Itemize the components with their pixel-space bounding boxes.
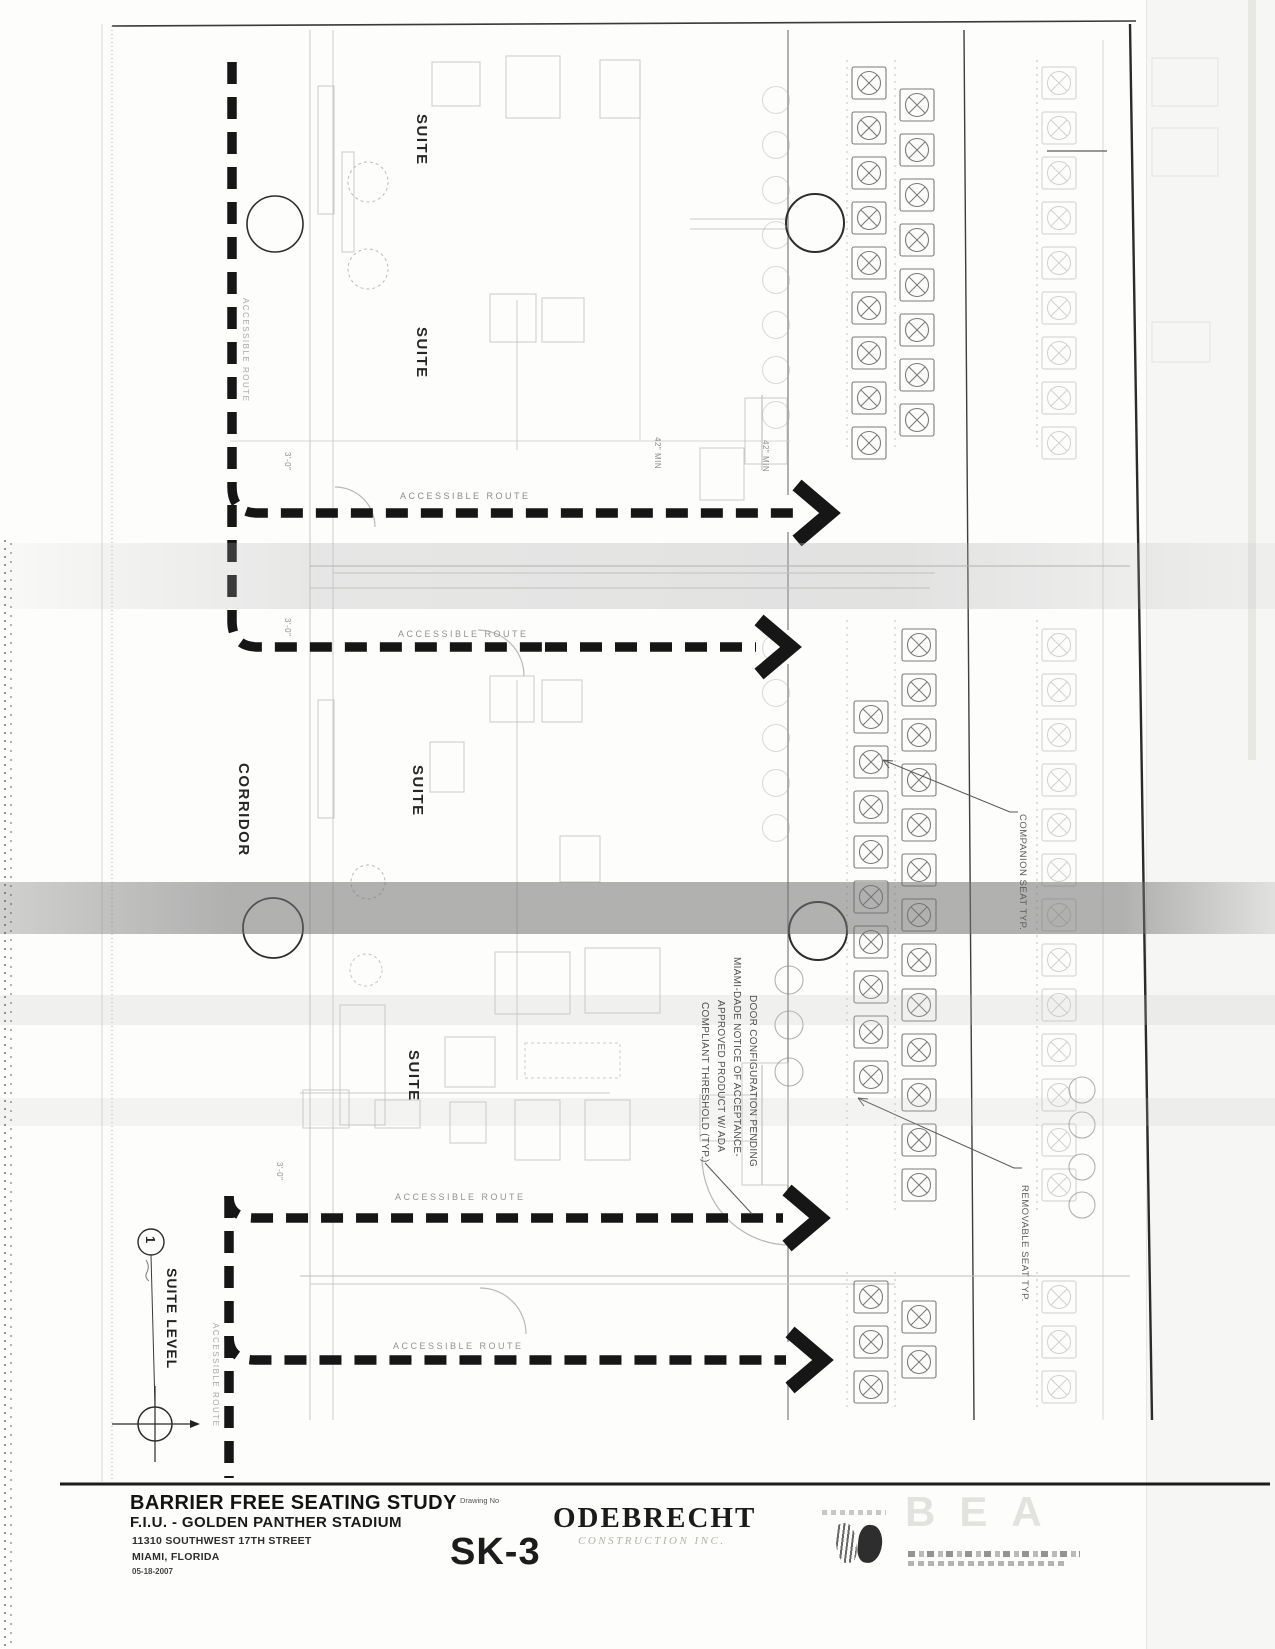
sheet-borders — [60, 21, 1270, 1484]
floor-plan-linework: .sd{stroke:#5a5a5a;fill:none;stroke-widt… — [0, 0, 1275, 1649]
route-2-path — [232, 505, 545, 647]
accessible-route-label-3: ACCESSIBLE ROUTE — [395, 1192, 526, 1202]
accessible-route-label-4: ACCESSIBLE ROUTE — [393, 1341, 524, 1351]
detail-marker — [112, 1229, 200, 1462]
suite-label-4: SUITE — [405, 1050, 422, 1102]
min-width-dimension-2: 42" MIN — [653, 437, 662, 469]
stamp-watermark: BEA — [905, 1488, 1066, 1536]
route-1-path — [232, 62, 797, 513]
clearance-dimension-1: 3'-0" — [283, 452, 292, 470]
removable-seat-note: REMOVABLE SEAT TYP. — [1019, 1185, 1030, 1302]
route-3-arrow — [787, 1190, 820, 1246]
accessible-route-label-1: ACCESSIBLE ROUTE — [400, 491, 531, 501]
detail-marker-number: 1 — [143, 1236, 158, 1243]
companion-seat-note: COMPANION SEAT TYP. — [1017, 814, 1028, 930]
accessible-route-label-2: ACCESSIBLE ROUTE — [398, 629, 529, 639]
detail-marker-title: SUITE LEVEL — [164, 1268, 180, 1369]
drawing-number-label: Drawing No — [460, 1496, 499, 1505]
suite-label-2: SUITE — [413, 327, 430, 379]
suite-label-1: SUITE — [413, 114, 430, 166]
door-swings — [335, 487, 790, 1334]
accessible-route-vertical-label-1: ACCESSIBLE ROUTE — [241, 298, 250, 402]
project-address-line-2: MIAMI, FLORIDA — [132, 1551, 220, 1563]
accessible-route-vertical-label-2: ACCESSIBLE ROUTE — [211, 1323, 220, 1427]
project-name: F.I.U. - GOLDEN PANTHER STADIUM — [130, 1514, 402, 1531]
corridor-label: CORRIDOR — [235, 763, 252, 857]
drawing-date: 05-18-2007 — [132, 1567, 173, 1576]
clearance-dimension-3: 3'-0" — [275, 1162, 284, 1180]
column-bubbles — [243, 162, 847, 986]
route-1-arrow — [797, 485, 830, 541]
walls — [310, 30, 1103, 1420]
project-address-line-1: 11310 SOUTHWEST 17TH STREET — [132, 1535, 312, 1547]
drawing-number: SK-3 — [450, 1531, 541, 1574]
route-2-arrow — [759, 620, 791, 674]
door-note-line-3: APPROVED PRODUCT W/ ADA — [715, 1000, 726, 1152]
structure-lines — [230, 151, 1130, 1284]
scanner-edge-artifact — [4, 540, 14, 1649]
route-4-arrow — [790, 1332, 823, 1388]
accessible-routes — [229, 62, 830, 1478]
dimension-strings — [847, 60, 1037, 1408]
door-note-line-4: COMPLIANT THRESHOLD (TYP.) — [699, 1002, 710, 1163]
suite-label-3: SUITE — [409, 765, 426, 817]
scanned-drawing-sheet: .sd{stroke:#5a5a5a;fill:none;stroke-widt… — [0, 0, 1275, 1649]
drawing-title: BARRIER FREE SEATING STUDY — [130, 1492, 457, 1515]
door-note-line-2: MIAMI-DADE NOTICE OF ACCEPTANCE- — [731, 957, 742, 1157]
door-note-line-1: DOOR CONFIGURATION PENDING — [747, 995, 758, 1167]
min-width-dimension-1: 42" MIN — [761, 440, 770, 472]
clearance-dimension-2: 3'-0" — [283, 618, 292, 636]
scan-ghost-marks — [1152, 58, 1218, 362]
contractor-logo: ODEBRECHT — [553, 1502, 756, 1535]
contractor-subtitle: CONSTRUCTION INC. — [578, 1535, 726, 1547]
